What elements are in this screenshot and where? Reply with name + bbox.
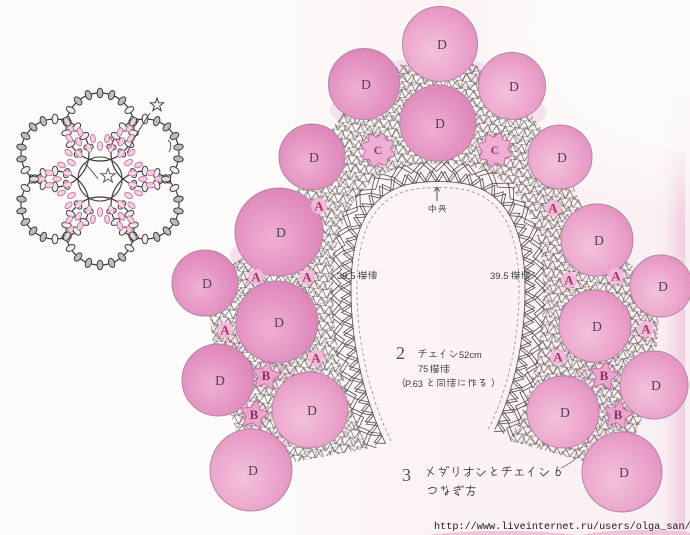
svg-text:A: A [302, 270, 312, 285]
svg-text:D: D [509, 79, 519, 94]
svg-text:A: A [564, 273, 574, 288]
svg-text:B: B [614, 407, 623, 422]
svg-text:D: D [361, 77, 371, 92]
svg-text:D: D [309, 150, 319, 165]
svg-text:D: D [202, 276, 212, 291]
svg-text:B: B [262, 368, 271, 383]
svg-text:D: D [307, 403, 317, 418]
svg-text:A: A [220, 323, 230, 338]
svg-text:D: D [651, 378, 661, 393]
svg-text:D: D [619, 465, 629, 480]
svg-text:2: 2 [396, 343, 405, 363]
svg-text:C: C [374, 143, 383, 157]
svg-text:D: D [435, 116, 445, 131]
svg-text:D: D [437, 37, 447, 52]
svg-text:D: D [560, 405, 570, 420]
svg-text:D: D [592, 319, 602, 334]
svg-text:C: C [491, 143, 500, 157]
svg-text:P.63: P.63 [405, 379, 423, 389]
svg-text:A: A [311, 351, 321, 366]
svg-text:39.5: 39.5 [337, 271, 356, 282]
svg-text:A: A [641, 322, 651, 337]
svg-text:3: 3 [402, 465, 411, 485]
svg-text:B: B [600, 368, 609, 383]
svg-text:52cm: 52cm [459, 350, 482, 360]
svg-text:D: D [215, 373, 225, 388]
svg-text:75: 75 [418, 364, 428, 374]
svg-text:D: D [276, 225, 286, 240]
svg-text:D: D [274, 315, 284, 330]
svg-text:A: A [314, 199, 324, 214]
svg-text:D: D [557, 150, 567, 165]
svg-text:A: A [611, 269, 621, 284]
svg-text:D: D [658, 279, 668, 294]
svg-text:B: B [250, 407, 259, 422]
svg-text:A: A [553, 350, 563, 365]
svg-text:http://www.liveinternet.ru/use: http://www.liveinternet.ru/users/olga_sa… [434, 521, 690, 533]
svg-text:39.5: 39.5 [490, 271, 509, 282]
svg-text:D: D [248, 463, 258, 478]
svg-text:A: A [251, 270, 261, 285]
svg-text:D: D [594, 233, 604, 248]
svg-text:A: A [548, 201, 558, 216]
